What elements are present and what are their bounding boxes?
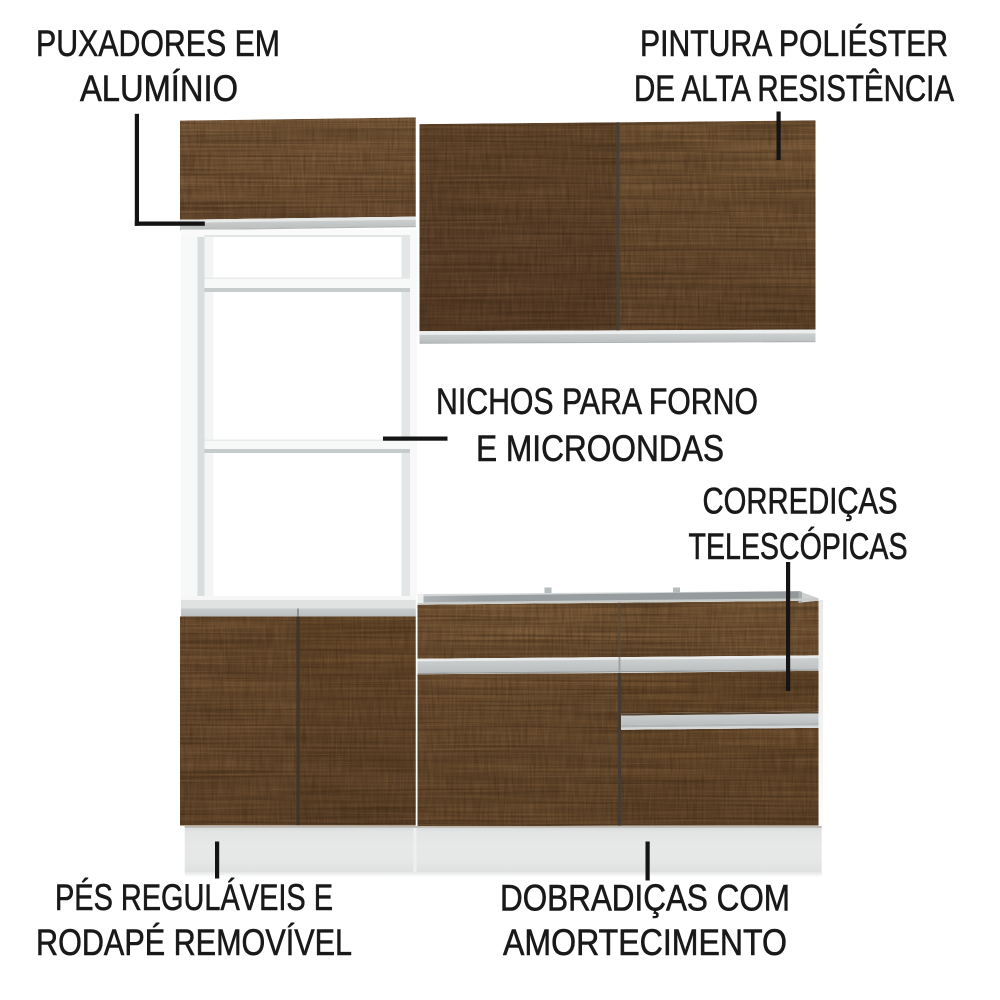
- svg-text:CORREDIÇAS: CORREDIÇAS: [703, 481, 898, 522]
- svg-text:PUXADORES EM: PUXADORES EM: [36, 23, 280, 64]
- svg-text:ALUMÍNIO: ALUMÍNIO: [80, 68, 238, 109]
- svg-text:PINTURA POLIÉSTER: PINTURA POLIÉSTER: [640, 23, 948, 64]
- svg-text:PÉS REGULÁVEIS E: PÉS REGULÁVEIS E: [55, 877, 333, 918]
- svg-text:DE ALTA RESISTÊNCIA: DE ALTA RESISTÊNCIA: [634, 68, 954, 109]
- svg-text:DOBRADIÇAS COM: DOBRADIÇAS COM: [500, 878, 790, 919]
- svg-text:AMORTECIMENTO: AMORTECIMENTO: [503, 922, 787, 963]
- svg-text:E MICROONDAS: E MICROONDAS: [476, 428, 724, 469]
- svg-text:TELESCÓPICAS: TELESCÓPICAS: [689, 526, 908, 567]
- svg-text:RODAPÉ REMOVÍVEL: RODAPÉ REMOVÍVEL: [36, 922, 352, 963]
- svg-text:NICHOS PARA FORNO: NICHOS PARA FORNO: [436, 381, 758, 422]
